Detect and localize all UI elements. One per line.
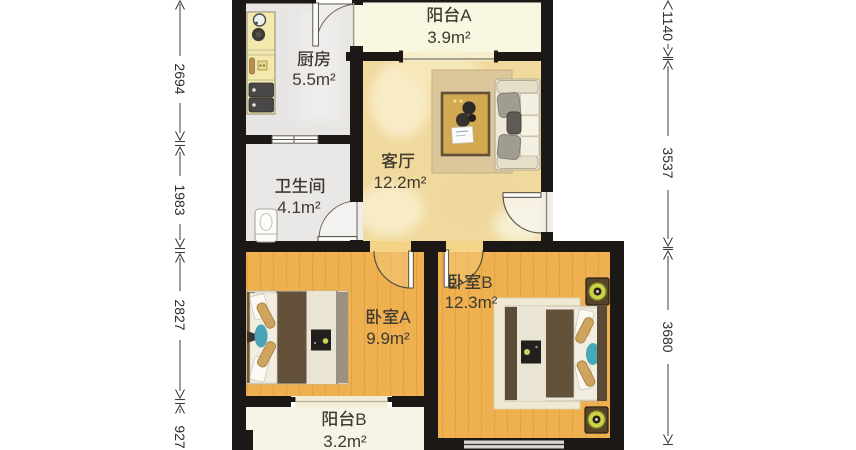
svg-text:9.9m²: 9.9m² bbox=[366, 329, 410, 348]
svg-text:A: A bbox=[460, 6, 472, 25]
svg-text:12.3m²: 12.3m² bbox=[445, 293, 498, 312]
svg-text:A: A bbox=[399, 308, 411, 327]
svg-text:B: B bbox=[355, 410, 366, 429]
svg-text:1140: 1140 bbox=[660, 11, 676, 41]
svg-text:12.2m²: 12.2m² bbox=[374, 173, 427, 192]
svg-text:1983: 1983 bbox=[172, 184, 188, 215]
svg-text:2694: 2694 bbox=[172, 63, 188, 94]
svg-text:3680: 3680 bbox=[660, 321, 676, 352]
svg-text:B: B bbox=[481, 273, 492, 292]
svg-text:4.1m²: 4.1m² bbox=[277, 198, 321, 217]
svg-text:5.5m²: 5.5m² bbox=[292, 70, 336, 89]
svg-text:3.9m²: 3.9m² bbox=[427, 28, 471, 47]
svg-text:927: 927 bbox=[172, 425, 188, 449]
svg-text:3.2m²: 3.2m² bbox=[323, 432, 367, 450]
svg-text:3537: 3537 bbox=[660, 147, 676, 178]
svg-text:2827: 2827 bbox=[172, 299, 188, 330]
